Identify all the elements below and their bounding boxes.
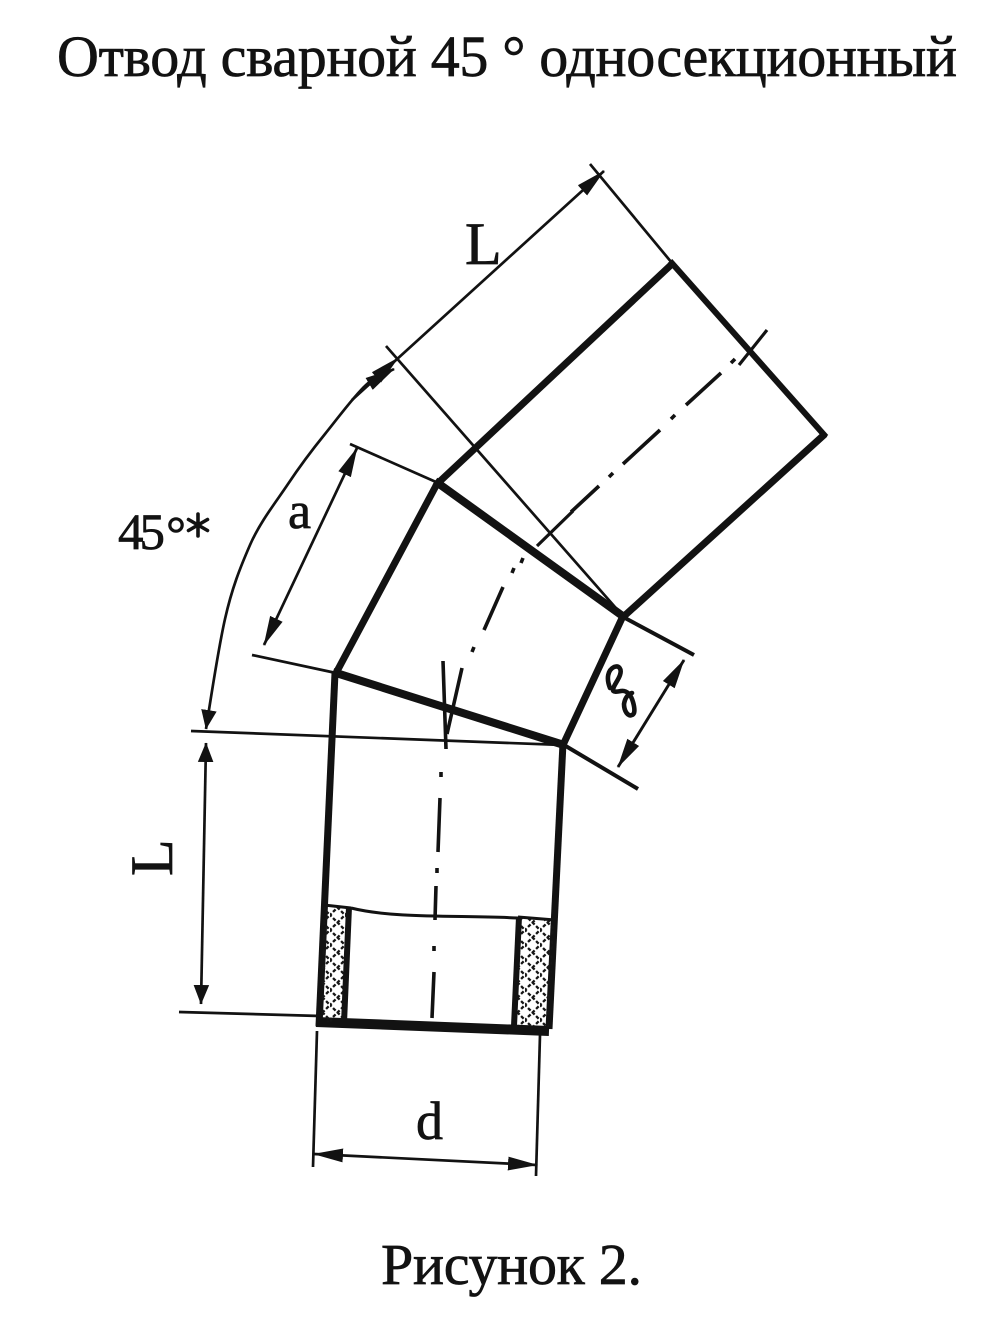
svg-text:Рисунок 2.: Рисунок 2. xyxy=(381,1232,642,1297)
svg-text:Отвод сварной 45 ° односекцион: Отвод сварной 45 ° односекционный xyxy=(57,24,957,89)
svg-text:45: 45 xyxy=(118,505,165,561)
svg-text:L: L xyxy=(119,839,185,876)
svg-text:d: d xyxy=(416,1091,443,1151)
svg-text:L: L xyxy=(465,211,502,277)
svg-text:a: a xyxy=(288,483,311,540)
